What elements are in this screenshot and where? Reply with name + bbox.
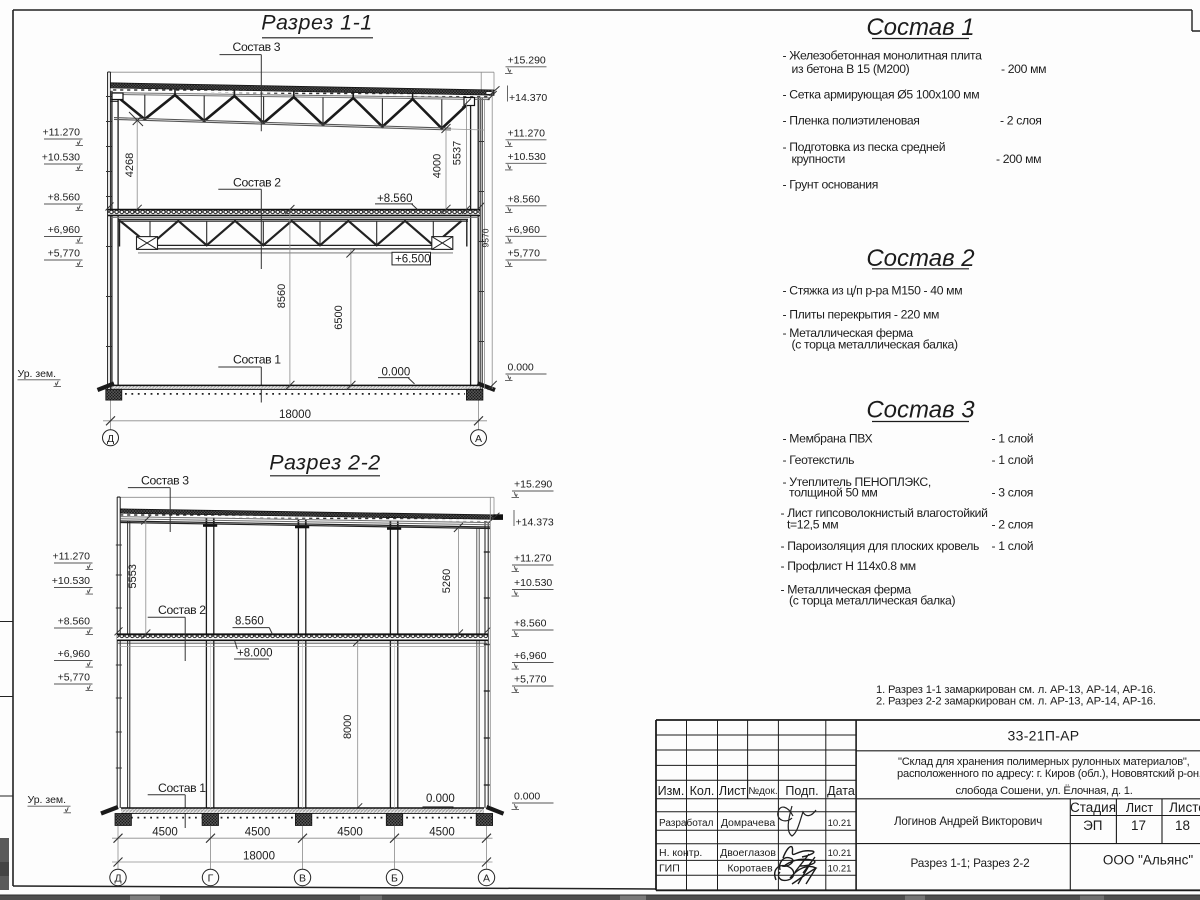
svg-text:ЭП: ЭП: [1083, 818, 1102, 833]
svg-text:+8.560: +8.560: [514, 618, 547, 630]
svg-text:33-21П-АР: 33-21П-АР: [1008, 728, 1080, 744]
svg-text:- 200 мм: - 200 мм: [1001, 62, 1046, 76]
svg-text:Лист: Лист: [1126, 801, 1153, 815]
svg-text:А: А: [475, 433, 482, 445]
svg-text:Состав 3: Состав 3: [233, 40, 281, 54]
svg-text:17: 17: [1131, 818, 1146, 833]
svg-text:- Геотекстиль: - Геотекстиль: [783, 453, 855, 467]
svg-text:6500: 6500: [333, 305, 345, 329]
svg-text:ООО "Альянс": ООО "Альянс": [1103, 853, 1193, 868]
svg-text:Д: Д: [114, 873, 121, 885]
svg-text:- Пленка полиэтиленовая: - Пленка полиэтиленовая: [783, 114, 920, 128]
svg-text:10.21: 10.21: [828, 864, 852, 875]
svg-text:4500: 4500: [152, 826, 178, 838]
svg-text:Разработал: Разработал: [659, 817, 714, 829]
svg-text:+15.290: +15.290: [514, 479, 552, 491]
svg-text:- Мембрана ПВХ: - Мембрана ПВХ: [783, 432, 873, 446]
svg-text:+14.370: +14.370: [509, 92, 547, 104]
svg-text:+8.560: +8.560: [48, 192, 81, 204]
svg-text:крупности: крупности: [792, 152, 846, 166]
svg-text:+6,960: +6,960: [508, 224, 541, 236]
svg-text:- Грунт основания: - Грунт основания: [783, 177, 878, 191]
svg-text:+8.000: +8.000: [237, 648, 273, 660]
svg-text:0.000: 0.000: [514, 791, 540, 803]
svg-text:Состав 1: Состав 1: [233, 353, 281, 367]
svg-text:Ур. зем.: Ур. зем.: [28, 794, 67, 806]
svg-text:- 2 слоя: - 2 слоя: [1000, 114, 1042, 128]
svg-text:Д: Д: [107, 433, 114, 445]
svg-text:А: А: [483, 873, 490, 885]
svg-text:4500: 4500: [429, 826, 455, 838]
svg-text:- 2 слоя: - 2 слоя: [992, 518, 1034, 532]
svg-text:8560: 8560: [276, 284, 288, 308]
svg-text:слобода Сошени, ул. Ёлочная, д: слобода Сошени, ул. Ёлочная, д. 1.: [955, 785, 1132, 797]
svg-text:+6,960: +6,960: [514, 650, 547, 662]
svg-text:+11.270: +11.270: [514, 553, 552, 565]
svg-text:8.560: 8.560: [235, 616, 264, 628]
svg-text:1. Разрез 1-1 замаркирован см.: 1. Разрез 1-1 замаркирован см. л. АР-13,…: [876, 684, 1156, 696]
svg-text:Разрез 1-1; Разрез 2-2: Разрез 1-1; Разрез 2-2: [910, 856, 1029, 870]
svg-text:5260: 5260: [441, 569, 453, 593]
svg-text:Подп.: Подп.: [785, 784, 818, 798]
svg-text:Логинов Андрей Викторович: Логинов Андрей Викторович: [894, 815, 1042, 828]
svg-text:- Пароизоляция для плоских кро: - Пароизоляция для плоских кровель: [781, 539, 980, 553]
svg-text:- Плиты перекрытия - 220 мм: - Плиты перекрытия - 220 мм: [783, 308, 940, 322]
svg-text:+5,770: +5,770: [48, 248, 81, 260]
svg-text:+15.290: +15.290: [508, 55, 546, 67]
svg-text:2. Разрез 2-2 замаркирован см.: 2. Разрез 2-2 замаркирован см. л. АР-13,…: [876, 696, 1156, 708]
svg-text:- Профлист Н 114х0.8 мм: - Профлист Н 114х0.8 мм: [781, 559, 916, 573]
svg-text:Разрез 1-1: Разрез 1-1: [261, 11, 373, 35]
svg-text:+11.270: +11.270: [43, 127, 81, 139]
svg-text:+5,770: +5,770: [508, 248, 541, 260]
svg-text:"Склад для хранения полимерных: "Склад для хранения полимерных рулонных …: [898, 756, 1190, 768]
svg-text:(с торца металлическая балка): (с торца металлическая балка): [789, 593, 955, 607]
svg-text:Состав 1: Состав 1: [158, 781, 206, 795]
svg-text:0.000: 0.000: [508, 362, 534, 374]
svg-text:+6,960: +6,960: [58, 648, 91, 660]
svg-text:8000: 8000: [342, 715, 354, 739]
svg-text:0.000: 0.000: [382, 366, 411, 378]
svg-text:из бетона В 15 (М200): из бетона В 15 (М200): [792, 62, 910, 76]
svg-text:Лист: Лист: [719, 784, 746, 798]
svg-text:Стадия: Стадия: [1070, 800, 1116, 815]
svg-text:10.21: 10.21: [828, 818, 852, 829]
svg-text:Ур. зем.: Ур. зем.: [18, 368, 57, 380]
svg-text:18: 18: [1175, 818, 1190, 833]
svg-text:Г: Г: [208, 873, 214, 885]
svg-text:18000: 18000: [279, 409, 311, 421]
svg-text:+14.373: +14.373: [516, 517, 554, 529]
svg-text:- 1 слой: - 1 слой: [992, 453, 1034, 467]
svg-text:+8.560: +8.560: [377, 193, 413, 205]
svg-text:- 1 слой: - 1 слой: [992, 539, 1034, 553]
svg-text:№док.: №док.: [748, 786, 777, 797]
svg-text:Листов: Листов: [1169, 800, 1200, 815]
svg-text:Состав 2: Состав 2: [158, 603, 206, 617]
svg-text:В: В: [299, 873, 306, 885]
svg-text:0.000: 0.000: [426, 793, 455, 805]
svg-text:+10.530: +10.530: [42, 152, 80, 164]
svg-text:+6.500: +6.500: [395, 254, 431, 266]
svg-text:18000: 18000: [243, 850, 275, 862]
svg-text:+5,770: +5,770: [514, 674, 547, 686]
svg-text:Состав 3: Состав 3: [866, 397, 975, 424]
svg-text:Коротаев: Коротаев: [727, 862, 773, 874]
svg-text:Двоеглазов: Двоеглазов: [720, 847, 776, 859]
svg-text:10.21: 10.21: [828, 848, 852, 859]
svg-text:Кол.: Кол.: [690, 784, 715, 798]
svg-text:- 200 мм: - 200 мм: [996, 152, 1041, 166]
svg-text:Изм.: Изм.: [658, 784, 685, 798]
svg-text:+8.560: +8.560: [58, 616, 91, 628]
svg-text:- 1 слой: - 1 слой: [992, 432, 1034, 446]
svg-text:- 3 слоя: - 3 слоя: [992, 486, 1034, 500]
svg-text:+11.270: +11.270: [53, 551, 91, 563]
svg-text:Состав 2: Состав 2: [233, 176, 281, 190]
svg-text:- Сетка армирующая Ø5 100х100: - Сетка армирующая Ø5 100х100 мм: [783, 88, 980, 102]
svg-text:Состав 1: Состав 1: [866, 14, 974, 41]
svg-text:Дата: Дата: [827, 784, 855, 798]
svg-text:- Железобетонная монолитная п: - Железобетонная монолитная плита: [783, 49, 983, 63]
svg-text:4500: 4500: [245, 826, 271, 838]
svg-text:Разрез 2-2: Разрез 2-2: [269, 450, 381, 474]
svg-text:- Стяжка из ц/п р-ра М150 - 40: - Стяжка из ц/п р-ра М150 - 40 мм: [783, 284, 963, 298]
svg-text:+10.530: +10.530: [508, 151, 546, 163]
svg-text:Домрачева: Домрачева: [721, 817, 776, 829]
svg-text:Состав 3: Состав 3: [141, 473, 189, 487]
svg-text:4000: 4000: [431, 154, 443, 178]
svg-text:+8.560: +8.560: [508, 194, 541, 206]
svg-text:+5,770: +5,770: [58, 672, 91, 684]
svg-text:9570: 9570: [480, 228, 490, 247]
svg-text:+10.530: +10.530: [514, 577, 552, 589]
svg-text:5537: 5537: [451, 141, 463, 165]
svg-text:5553: 5553: [127, 564, 139, 588]
svg-text:4500: 4500: [337, 826, 363, 838]
svg-text:Состав 2: Состав 2: [866, 245, 974, 272]
svg-text:толщиной 50 мм: толщиной 50 мм: [789, 486, 877, 500]
svg-text:+10.530: +10.530: [52, 575, 90, 587]
svg-text:Б: Б: [391, 873, 398, 885]
svg-text:t=12,5 мм: t=12,5 мм: [787, 518, 838, 532]
svg-text:4268: 4268: [124, 153, 136, 177]
svg-text:+11.270: +11.270: [508, 128, 546, 140]
svg-text:расположенного по адресу: г. К: расположенного по адресу: г. Киров (обл.…: [897, 768, 1200, 780]
svg-text:+6,960: +6,960: [48, 224, 81, 236]
svg-text:ГИП: ГИП: [659, 862, 680, 874]
svg-text:Н. контр.: Н. контр.: [659, 847, 702, 859]
svg-text:(с торца металлическая балка): (с торца металлическая балка): [792, 338, 958, 352]
